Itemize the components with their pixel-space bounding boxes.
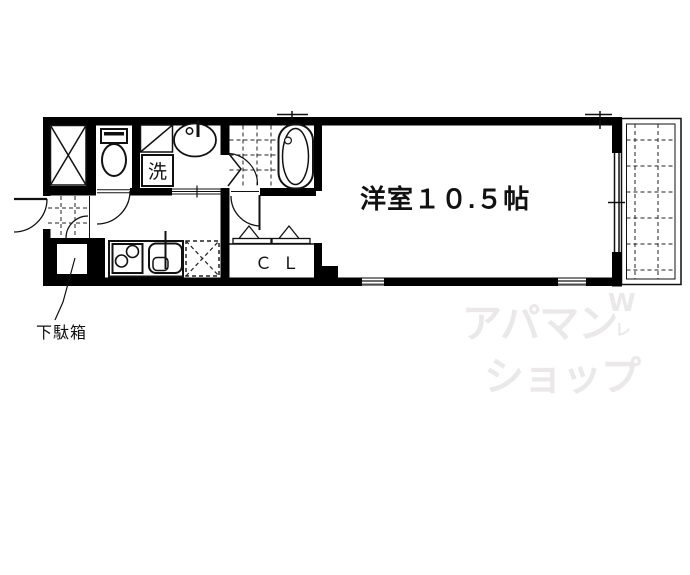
floorplan-page: アパマン ショップ W レ xyxy=(0,0,690,575)
wall-closet-step xyxy=(314,266,338,286)
closet-door-panel xyxy=(272,239,310,244)
watermark-w-mark: W xyxy=(608,288,636,317)
wall-storage-right xyxy=(86,117,96,195)
wall-left-upper xyxy=(43,117,51,196)
wall-bath-right xyxy=(314,117,322,191)
wall-bath-divider-upper xyxy=(221,117,230,155)
floorplan-drawing: アパマン ショップ W レ xyxy=(0,0,690,575)
wall-right-upper xyxy=(612,117,622,153)
washing-machine-icon: 洗 xyxy=(142,155,173,186)
wall-right-lower xyxy=(612,252,622,287)
shoe-cabinet-label: 下駄箱 xyxy=(36,324,87,342)
pipe-space-icon xyxy=(51,126,87,186)
watermark-text-line1: アパマン xyxy=(462,301,617,347)
watermark-text-line2: ショップ xyxy=(484,354,641,400)
page-background xyxy=(0,0,690,575)
watermark-tick-mark: レ xyxy=(615,320,631,339)
wall-hall-b xyxy=(260,188,316,196)
washing-machine-label: 洗 xyxy=(148,161,167,183)
wall-hall-a xyxy=(130,188,172,196)
bathtub-icon xyxy=(279,125,314,189)
stove-icon xyxy=(113,244,143,273)
watermark-logo: アパマン ショップ W レ xyxy=(462,288,641,400)
toilet-icon xyxy=(101,129,127,176)
wall-top xyxy=(43,117,617,126)
shelf-icon xyxy=(141,125,173,152)
closet-door-panel xyxy=(233,239,271,244)
balcony xyxy=(622,119,682,285)
main-room-label: 洋室１０.５帖 xyxy=(360,184,530,214)
closet-label: ＣＬ xyxy=(255,254,309,273)
wall-corridor-divider xyxy=(221,188,230,286)
wall-entry-top xyxy=(43,186,96,196)
wall-toilet-right xyxy=(132,117,140,195)
balcony-floor xyxy=(627,124,676,279)
